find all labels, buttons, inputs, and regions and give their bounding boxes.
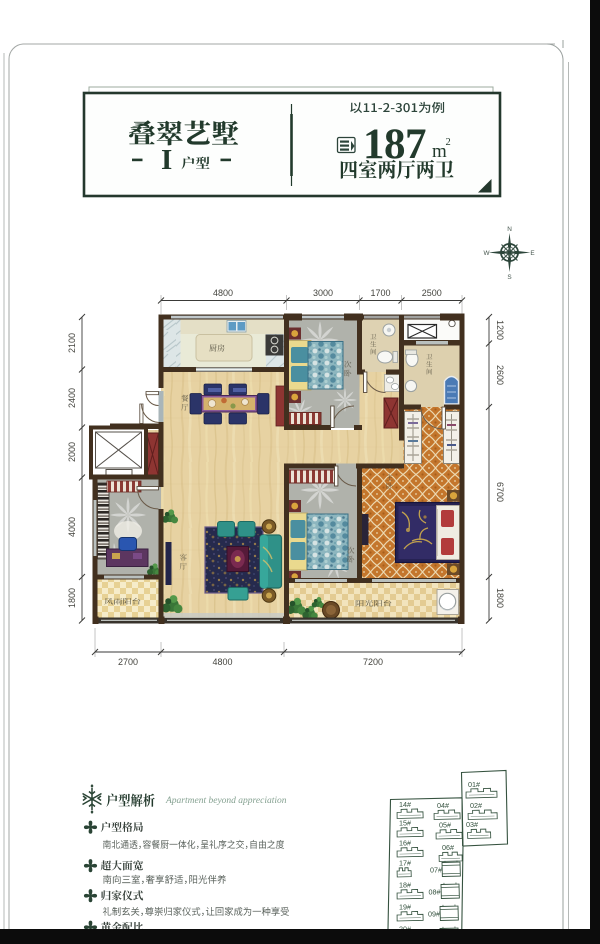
svg-text:N: N [507, 226, 512, 233]
svg-text:1200: 1200 [495, 320, 505, 340]
svg-text:1800: 1800 [495, 588, 505, 608]
svg-text:2400: 2400 [67, 388, 77, 408]
svg-text:15#: 15# [399, 819, 411, 828]
svg-text:16#: 16# [399, 839, 411, 848]
svg-text:17#: 17# [399, 859, 411, 868]
svg-text:4000: 4000 [67, 517, 77, 537]
svg-text:2100: 2100 [67, 333, 77, 353]
svg-text:02#: 02# [470, 801, 482, 810]
svg-text:09#: 09# [428, 910, 440, 919]
svg-text:14#: 14# [399, 800, 411, 809]
svg-text:2000: 2000 [67, 442, 77, 462]
svg-text:04#: 04# [437, 801, 449, 810]
svg-text:01#: 01# [468, 780, 480, 789]
svg-text:4800: 4800 [213, 288, 233, 298]
svg-text:05#: 05# [439, 821, 451, 830]
svg-text:08#: 08# [429, 888, 441, 897]
svg-text:06#: 06# [442, 843, 454, 852]
svg-text:03#: 03# [466, 820, 478, 829]
svg-text:2600: 2600 [495, 365, 505, 385]
svg-text:4800: 4800 [212, 657, 232, 667]
svg-text:E: E [530, 250, 534, 257]
svg-text:S: S [507, 274, 511, 281]
svg-text:1700: 1700 [370, 288, 390, 298]
svg-text:19#: 19# [399, 903, 411, 912]
svg-text:I: I [161, 144, 172, 176]
svg-text:Apartment beyond appreciation: Apartment beyond appreciation [165, 796, 287, 806]
svg-text:2: 2 [446, 137, 451, 148]
svg-text:3000: 3000 [313, 288, 333, 298]
svg-text:6700: 6700 [495, 482, 505, 502]
svg-text:W: W [483, 250, 490, 257]
svg-text:07#: 07# [430, 866, 442, 875]
svg-text:2700: 2700 [118, 657, 138, 667]
svg-text:1800: 1800 [67, 588, 77, 608]
svg-text:2500: 2500 [422, 288, 442, 298]
svg-text:18#: 18# [399, 881, 411, 890]
svg-text:7200: 7200 [363, 657, 383, 667]
